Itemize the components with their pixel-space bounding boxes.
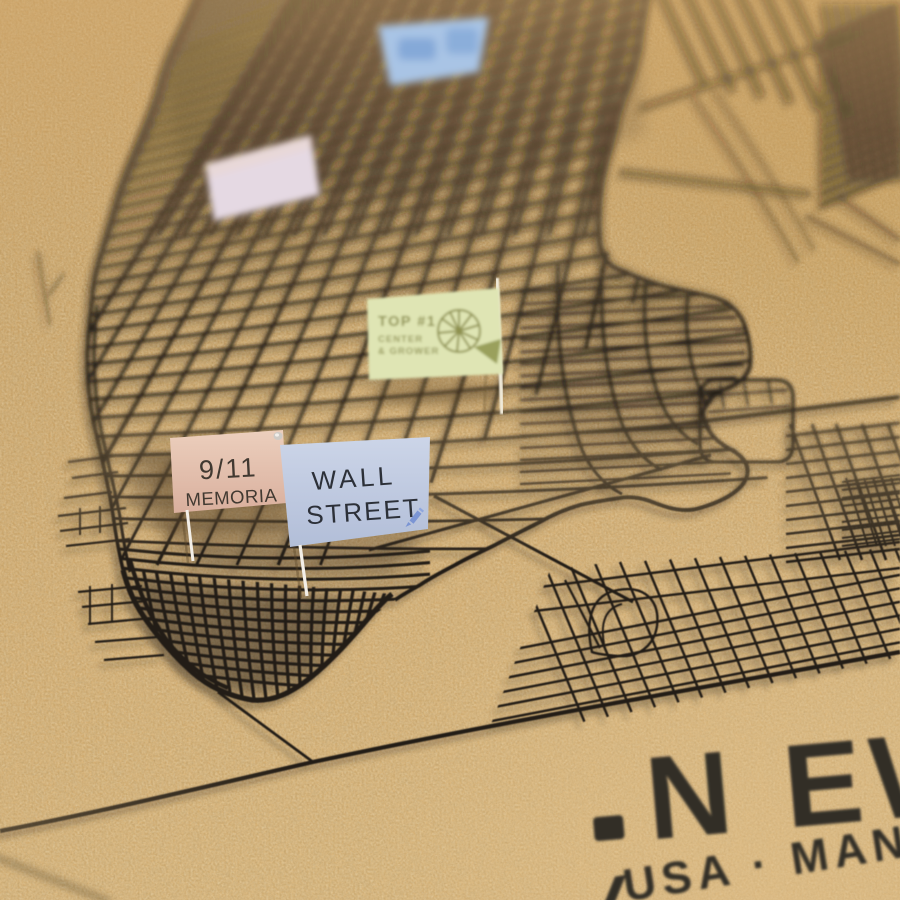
svg-text:9/11: 9/11 <box>198 452 258 485</box>
svg-text:CENTER: CENTER <box>378 334 423 345</box>
svg-text:TOP #1: TOP #1 <box>378 314 436 330</box>
svg-text:& GROWER: & GROWER <box>378 346 439 357</box>
svg-text:WALL: WALL <box>311 460 397 496</box>
